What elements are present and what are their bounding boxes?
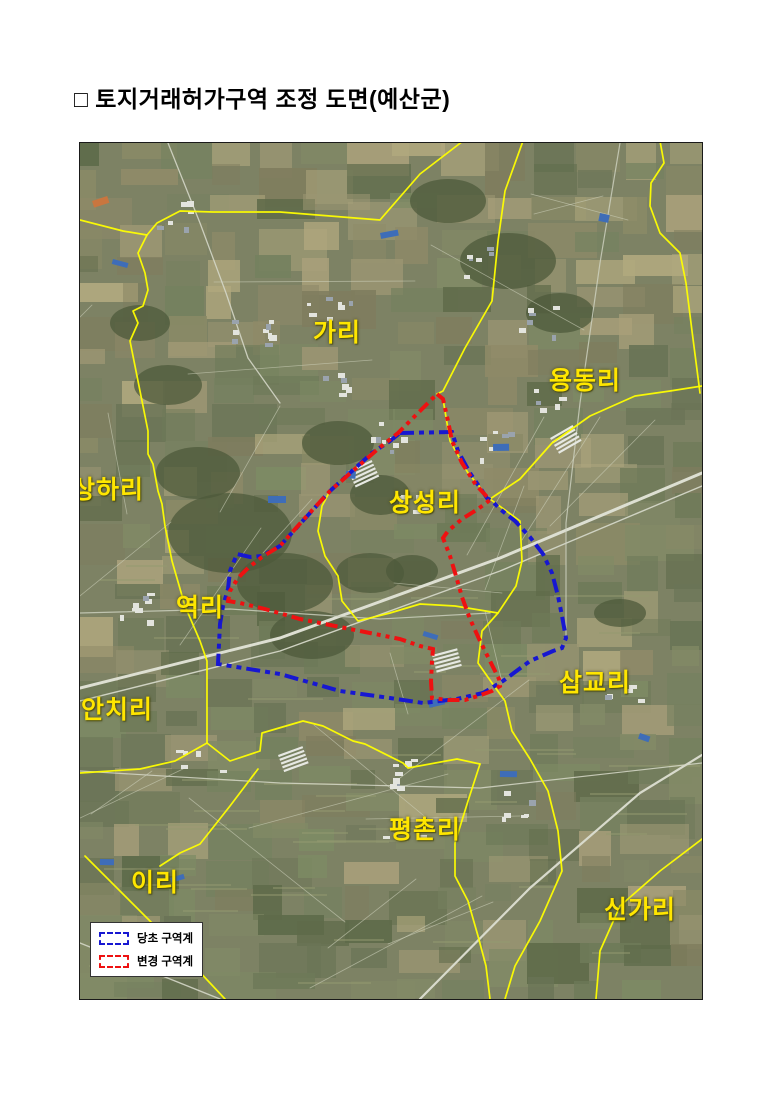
original-zone-swatch xyxy=(99,932,129,945)
map-legend: 당초 구역계 변경 구역계 xyxy=(90,922,203,977)
legend-item-changed: 변경 구역계 xyxy=(99,953,193,969)
legend-item-original: 당초 구역계 xyxy=(99,930,193,946)
document-title: □ 토지거래허가구역 조정 도면(예산군) xyxy=(74,80,450,114)
map-image: 가리용동리상하리상성리역리삽교리안치리평촌리이리신가리 당초 구역계 변경 구역… xyxy=(79,142,703,1000)
satellite-map xyxy=(80,143,702,999)
legend-label-changed: 변경 구역계 xyxy=(137,953,193,969)
document-page: □ 토지거래허가구역 조정 도면(예산군) 가리용동리상하리상성리역리삽교리안치… xyxy=(0,0,780,1103)
changed-zone-swatch xyxy=(99,955,129,968)
legend-label-original: 당초 구역계 xyxy=(137,930,193,946)
